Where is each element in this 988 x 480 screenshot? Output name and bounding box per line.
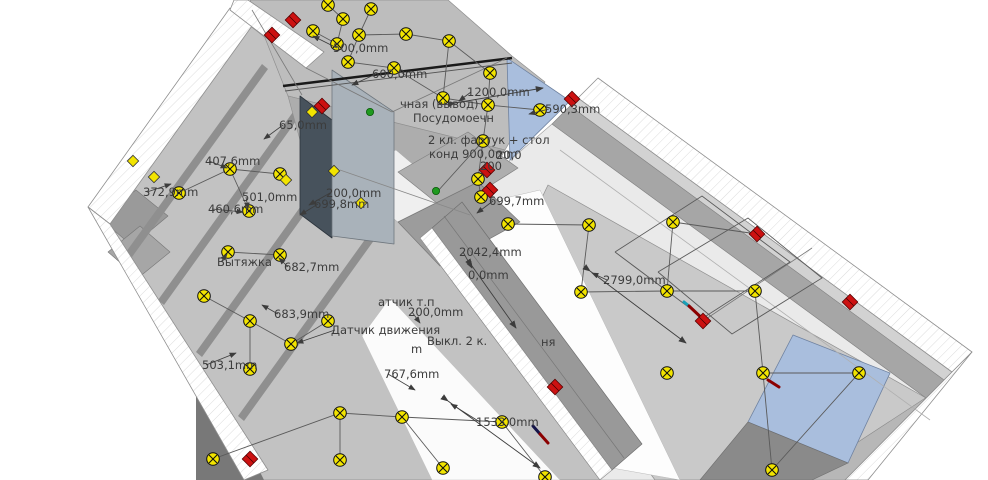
dimension-label[interactable]: 767,6mm [384, 367, 439, 381]
ceiling-light-symbol[interactable] [482, 99, 495, 112]
dimension-label[interactable]: 200 [480, 159, 502, 173]
dimension-label[interactable]: Посудомоечн [413, 111, 494, 125]
ceiling-light-symbol[interactable] [667, 216, 680, 229]
dimension-label[interactable]: 682,7mm [284, 260, 339, 274]
ceiling-light-symbol[interactable] [583, 219, 596, 232]
dimension-label[interactable]: 0,0mm [468, 268, 509, 282]
dimension-label[interactable]: 590,3mm [545, 102, 600, 116]
ceiling-light-symbol[interactable] [334, 454, 347, 467]
ceiling-light-symbol[interactable] [661, 367, 674, 380]
ceiling-light-symbol[interactable] [749, 285, 762, 298]
dimension-label[interactable]: 683,9mm [274, 307, 329, 321]
ceiling-light-symbol[interactable] [400, 28, 413, 41]
ceiling-light-symbol[interactable] [539, 471, 552, 480]
ceiling-light-symbol[interactable] [443, 35, 456, 48]
connection-point-symbol[interactable] [432, 187, 439, 194]
ceiling-light-symbol[interactable] [244, 315, 257, 328]
dimension-label[interactable]: m [411, 342, 422, 356]
dimension-label[interactable]: 372,9mm [143, 185, 198, 199]
ceiling-light-symbol[interactable] [766, 464, 779, 477]
dimension-label[interactable]: 699,8mm [314, 197, 369, 211]
dimension-label[interactable]: 460,6mm [208, 202, 263, 216]
ceiling-light-symbol[interactable] [307, 25, 320, 38]
ceiling-light-symbol[interactable] [342, 56, 355, 69]
dimension-label[interactable]: Вытяжка [217, 255, 272, 269]
dimension-label[interactable]: 1533,0mm [476, 415, 539, 429]
cad-viewport[interactable]: 500,0mm600,0mm1200,0mm590,3mmчная (вывод… [0, 0, 988, 480]
ceiling-light-symbol[interactable] [757, 367, 770, 380]
ceiling-light-symbol[interactable] [472, 173, 485, 186]
ceiling-light-symbol[interactable] [575, 286, 588, 299]
dimension-label[interactable]: 2 кл. фартук + стол [428, 133, 550, 147]
dimension-label[interactable]: Выкл. 2 к. [427, 334, 487, 348]
ceiling-light-symbol[interactable] [198, 290, 211, 303]
scene-svg: 500,0mm600,0mm1200,0mm590,3mmчная (вывод… [0, 0, 988, 480]
connection-point-symbol[interactable] [366, 108, 373, 115]
dimension-label[interactable]: Датчик движения [331, 323, 440, 337]
dimension-label[interactable]: ня [541, 335, 555, 349]
dimension-label[interactable]: 200,0mm [408, 305, 463, 319]
ceiling-light-symbol[interactable] [337, 13, 350, 26]
ceiling-light-symbol[interactable] [437, 462, 450, 475]
ceiling-light-symbol[interactable] [322, 0, 335, 11]
ceiling-light-symbol[interactable] [334, 407, 347, 420]
ceiling-light-symbol[interactable] [502, 218, 515, 231]
dimension-label[interactable]: 2799,0mm [603, 273, 666, 287]
dimension-label[interactable]: 2042,4mm [459, 245, 522, 259]
dimension-label[interactable]: 407,6mm [205, 154, 260, 168]
dimension-label[interactable]: 500,0mm [333, 41, 388, 55]
ceiling-light-symbol[interactable] [396, 411, 409, 424]
ceiling-light-symbol[interactable] [207, 453, 220, 466]
dimension-label[interactable]: чная (вывод) [400, 97, 479, 111]
ceiling-light-symbol[interactable] [853, 367, 866, 380]
dimension-label[interactable]: 503,1mm [202, 358, 257, 372]
dimension-label[interactable]: 65,0mm [279, 118, 327, 132]
ceiling-light-symbol[interactable] [365, 3, 378, 16]
dimension-label[interactable]: 600,0mm [372, 67, 427, 81]
ceiling-light-symbol[interactable] [484, 67, 497, 80]
dimension-label[interactable]: 699,7mm [489, 194, 544, 208]
ceiling-light-symbol[interactable] [353, 29, 366, 42]
ceiling-light-symbol[interactable] [285, 338, 298, 351]
architecture-layer [88, 0, 972, 480]
